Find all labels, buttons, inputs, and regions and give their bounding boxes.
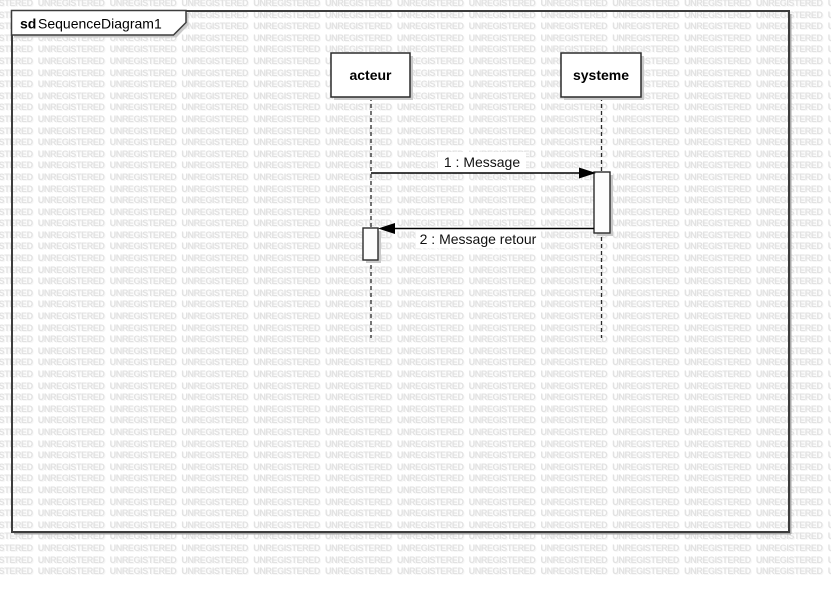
lifeline-name-acteur: acteur [349,67,392,83]
lifeline-name-systeme: systeme [573,67,629,83]
activation-bar-acteur[interactable] [363,228,381,263]
activation-bar-acteur-box [363,228,378,260]
frame-title: SequenceDiagram1 [38,16,162,32]
lifeline-head-systeme[interactable]: systeme [561,53,644,100]
frame-name-tab[interactable]: sd SequenceDiagram1 [12,11,189,38]
sequence-diagram-canvas: sd SequenceDiagram1 acteur systeme 1 : M… [0,0,831,577]
activation-bar-systeme-box [594,172,610,233]
message-1-call[interactable]: 1 : Message [371,152,596,179]
message-1-label: 1 : Message [444,154,520,170]
message-2-return[interactable]: 2 : Message retour [378,223,594,249]
lifeline-head-acteur[interactable]: acteur [331,53,413,100]
message-2-label: 2 : Message retour [420,231,537,247]
activation-bar-systeme[interactable] [594,172,613,236]
frame-keyword: sd [20,16,36,32]
